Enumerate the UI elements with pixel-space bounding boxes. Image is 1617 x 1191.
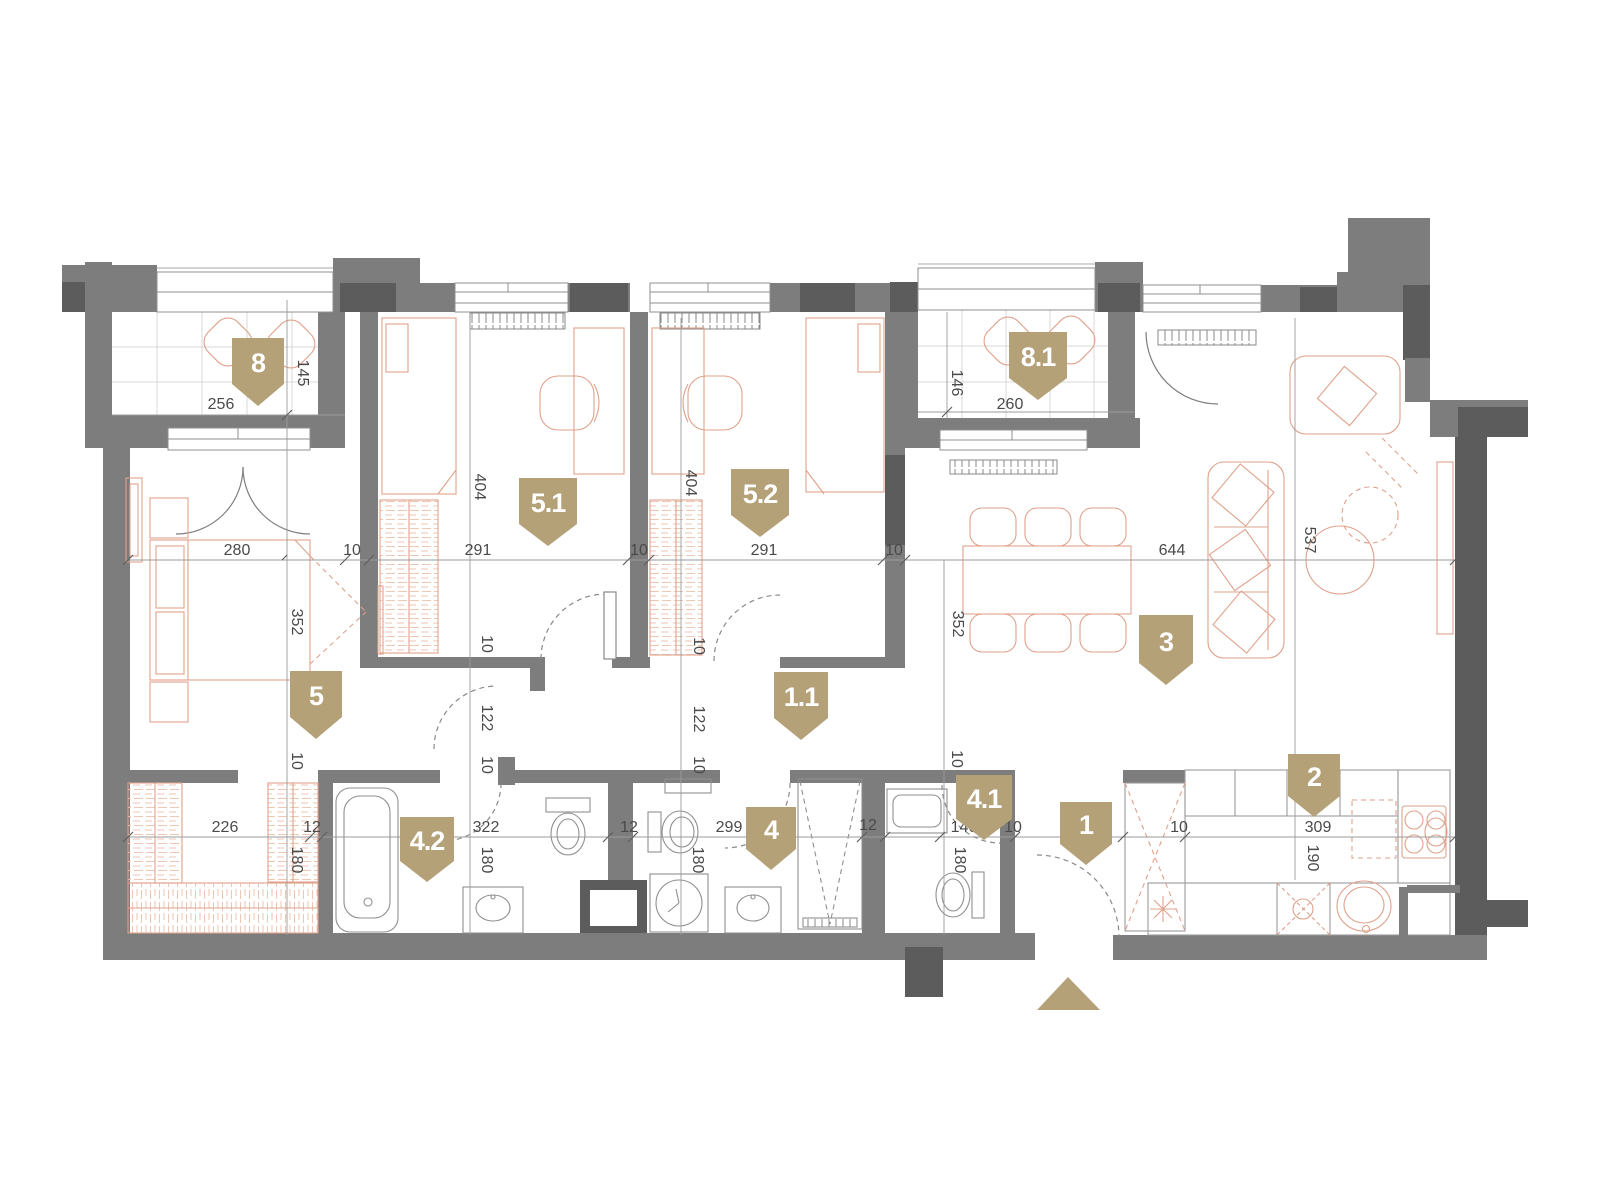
dimension-label: 322 xyxy=(473,819,500,836)
dimension-label: 309 xyxy=(1305,819,1332,836)
dimension-label: 404 xyxy=(471,474,488,501)
dimension-label: 291 xyxy=(465,542,492,559)
dimension-label: 10 xyxy=(948,750,965,768)
room-5-1-furniture xyxy=(380,318,624,653)
dimension-label: 180 xyxy=(288,847,305,874)
dimension-label: 180 xyxy=(951,847,968,874)
room-badge-label: 5 xyxy=(309,681,324,711)
room-badge-5-1: 5.1 xyxy=(519,478,577,546)
dimension-label: 12 xyxy=(859,817,877,834)
room-badge-label: 8 xyxy=(251,348,266,378)
room-badge-label: 4 xyxy=(764,815,779,845)
dimension-label: 644 xyxy=(1159,542,1186,559)
room-badge-5: 5 xyxy=(290,671,342,739)
dimension-label: 12 xyxy=(620,819,638,836)
room-badge-label: 1 xyxy=(1079,810,1094,840)
room-badge-4: 4 xyxy=(746,807,796,870)
room-badge-label: 4.2 xyxy=(410,826,445,856)
dimension-label: 10 xyxy=(478,635,495,653)
dimension-label: 10 xyxy=(630,542,648,559)
entrance-arrow-icon xyxy=(1037,977,1100,1010)
dimension-label: 291 xyxy=(751,542,778,559)
dimension-label: 190 xyxy=(1304,845,1321,872)
room-5-furniture xyxy=(126,478,383,722)
room-badge-label: 4.1 xyxy=(967,784,1003,814)
dimension-label: 180 xyxy=(478,847,495,874)
floor-plan-page: 256 145 260 146 280 10 291 10 291 10 644… xyxy=(0,0,1617,1191)
room-badge-1-1: 1.1 xyxy=(774,672,828,740)
room-badge-label: 8.1 xyxy=(1021,342,1057,372)
room-badge-2: 2 xyxy=(1288,754,1340,817)
dimension-label: 12 xyxy=(303,819,321,836)
dimension-label: 404 xyxy=(682,470,699,497)
dimension-label: 352 xyxy=(288,609,305,636)
dimension-label: 122 xyxy=(690,706,707,733)
room-badge-label: 2 xyxy=(1307,762,1321,792)
dimension-label: 256 xyxy=(208,396,235,413)
dimension-label: 10 xyxy=(288,752,305,770)
dimension-label: 537 xyxy=(1301,527,1318,554)
dimension-label: 10 xyxy=(690,637,707,655)
dimension-label: 146 xyxy=(948,370,965,397)
dimension-label: 10 xyxy=(478,756,495,774)
dimension-label: 352 xyxy=(949,611,966,638)
room-badge-label: 3 xyxy=(1159,627,1174,657)
room-badge-3: 3 xyxy=(1139,615,1193,685)
dimension-label: 145 xyxy=(294,360,311,387)
room-badge-label: 5.2 xyxy=(743,479,778,509)
dimension-label: 299 xyxy=(716,819,743,836)
room-badge-8: 8 xyxy=(232,338,284,406)
radiators xyxy=(470,313,1256,474)
dimension-label: 280 xyxy=(224,542,251,559)
room-badge-8-1: 8.1 xyxy=(1009,332,1067,400)
dimension-label: 260 xyxy=(997,396,1024,413)
dimension-label: 180 xyxy=(689,847,706,874)
dimension-label: 10 xyxy=(885,542,903,559)
room-badge-label: 5.1 xyxy=(531,488,567,518)
room-badge-1: 1 xyxy=(1060,802,1112,865)
living-room-furniture xyxy=(963,356,1453,658)
dimension-label: 122 xyxy=(478,705,495,732)
dimension-label: 10 xyxy=(1170,819,1188,836)
bathroom-4-2-furniture xyxy=(336,788,590,933)
room-badge-label: 1.1 xyxy=(784,682,820,712)
room-badge-5-2: 5.2 xyxy=(731,469,789,537)
room-badge-4-2: 4.2 xyxy=(400,817,454,882)
dimension-label: 10 xyxy=(690,756,707,774)
dimension-label: 10 xyxy=(343,542,361,559)
dimension-label: 226 xyxy=(212,819,239,836)
floor-plan-drawing: 256 145 260 146 280 10 291 10 291 10 644… xyxy=(0,0,1617,1191)
